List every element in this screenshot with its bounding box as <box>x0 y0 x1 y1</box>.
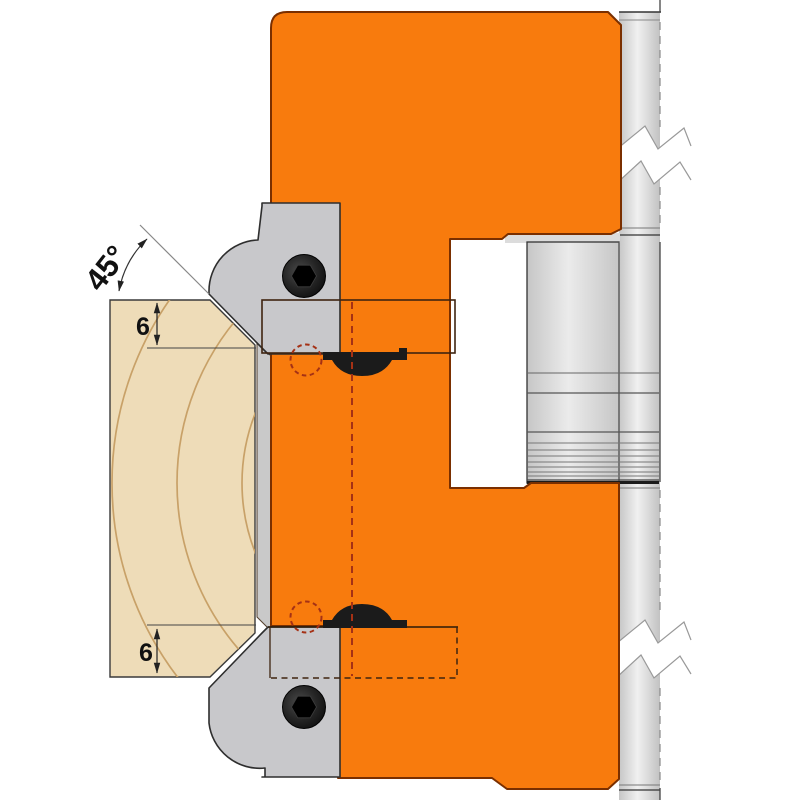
angle-dimension: 45° <box>78 225 209 297</box>
rim-strip <box>257 342 272 632</box>
cutterhead-cross-section-diagram: 45° 6 6 <box>0 0 800 800</box>
depth-label-bottom: 6 <box>139 639 153 667</box>
angle-label: 45° <box>78 239 134 297</box>
hex-screw-top <box>283 255 326 298</box>
hex-screw-bottom <box>283 686 326 729</box>
spindle-shaft <box>619 0 661 800</box>
wood-workpiece <box>110 300 255 677</box>
diagram-canvas: 45° 6 6 <box>0 0 800 800</box>
depth-label-top: 6 <box>136 313 150 341</box>
